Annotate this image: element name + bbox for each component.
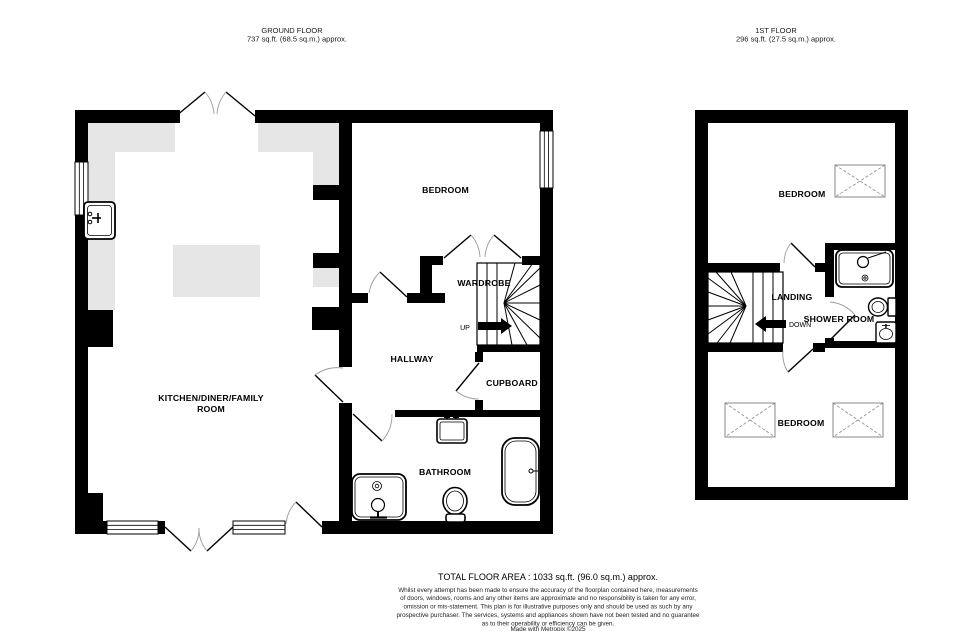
disclaimer-line: prospective purchaser. The services, sys… [396, 612, 700, 619]
bathroom-sink [437, 416, 467, 443]
window-kitchen-bottom-right [233, 521, 285, 534]
kitchen-sink [84, 202, 115, 239]
floor-headers: GROUND FLOOR 737 sq.ft. (68.5 sq.m.) app… [247, 26, 836, 44]
footer: TOTAL FLOOR AREA : 1033 sq.ft. (96.0 sq.… [396, 572, 700, 631]
kitchen-island [173, 245, 260, 297]
kitchen-hallway-door-leaf [315, 375, 343, 402]
label-cupboard: CUPBOARD [486, 378, 538, 388]
kitchen-counters [88, 123, 342, 310]
floorplan-page: BEDROOM WARDROBE HALLWAY CUPBOARD BATHRO… [0, 0, 980, 631]
label-bedroom-front: BEDROOM [779, 189, 826, 199]
floorplan-canvas: BEDROOM WARDROBE HALLWAY CUPBOARD BATHRO… [0, 0, 980, 631]
stairs-ground [477, 263, 540, 345]
label-kitchen-line2: ROOM [197, 404, 225, 414]
first-floor-area: 296 sq.ft. (27.5 sq.m.) approx. [736, 35, 836, 44]
label-down: DOWN [789, 322, 811, 329]
total-floor-area: TOTAL FLOOR AREA : 1033 sq.ft. (96.0 sq.… [438, 572, 658, 582]
bathroom-door-leaf [353, 414, 382, 441]
shower-room-fixtures [836, 250, 896, 343]
velux-bedroom-front [835, 165, 885, 197]
window-bedroom-right [540, 131, 553, 188]
label-landing: LANDING [772, 292, 813, 302]
label-up: UP [460, 325, 470, 332]
bedroom-back-door-leaf [788, 349, 813, 372]
shower-room-sink [876, 322, 896, 343]
first-floor-plan: BEDROOM LANDING SHOWER ROOM BEDROOM DOWN [695, 110, 908, 500]
window-kitchen-bottom-left [107, 521, 158, 534]
made-with-credit: Made with Metropix ©2025 [511, 625, 586, 631]
disclaimer-line: of doors, windows, rooms and any other i… [400, 595, 696, 602]
wardrobe-door-left-leaf [444, 235, 471, 258]
label-wardrobe: WARDROBE [457, 278, 510, 288]
shower [352, 474, 406, 520]
label-bedroom-ground: BEDROOM [422, 185, 469, 195]
french-door-top-right-leaf [226, 92, 255, 116]
disclaimer-line: Whilst every attempt has been made to en… [398, 587, 698, 594]
ground-floor-plan: BEDROOM WARDROBE HALLWAY CUPBOARD BATHRO… [75, 92, 553, 551]
wardrobe-door-right-leaf [494, 235, 521, 258]
shower-tray [836, 250, 893, 287]
velux-bedroom-back-left [725, 403, 775, 437]
french-door-top-left-leaf [176, 92, 205, 116]
bathtub [502, 438, 539, 505]
toilet [443, 488, 467, 523]
label-shower-room: SHOWER ROOM [804, 314, 875, 324]
french-door-bottom-left-leaf [165, 527, 191, 551]
stairs-first [708, 272, 783, 343]
ground-floor-area: 737 sq.ft. (68.5 sq.m.) approx. [247, 35, 347, 44]
disclaimer-line: omission or mis-statement. This plan is … [404, 604, 694, 611]
bedroom-front-door-leaf [791, 243, 815, 267]
entrance-door-leaf [296, 502, 322, 527]
velux-bedroom-back-right [833, 403, 883, 437]
label-kitchen-line1: KITCHEN/DINER/FAMILY [158, 393, 264, 403]
french-door-bottom-right-leaf [207, 527, 233, 551]
label-bathroom: BATHROOM [419, 467, 471, 477]
bedroom-door-leaf [380, 272, 407, 297]
label-hallway: HALLWAY [390, 354, 433, 364]
cupboard-door-leaf [456, 363, 479, 391]
label-bedroom-back: BEDROOM [778, 418, 825, 428]
